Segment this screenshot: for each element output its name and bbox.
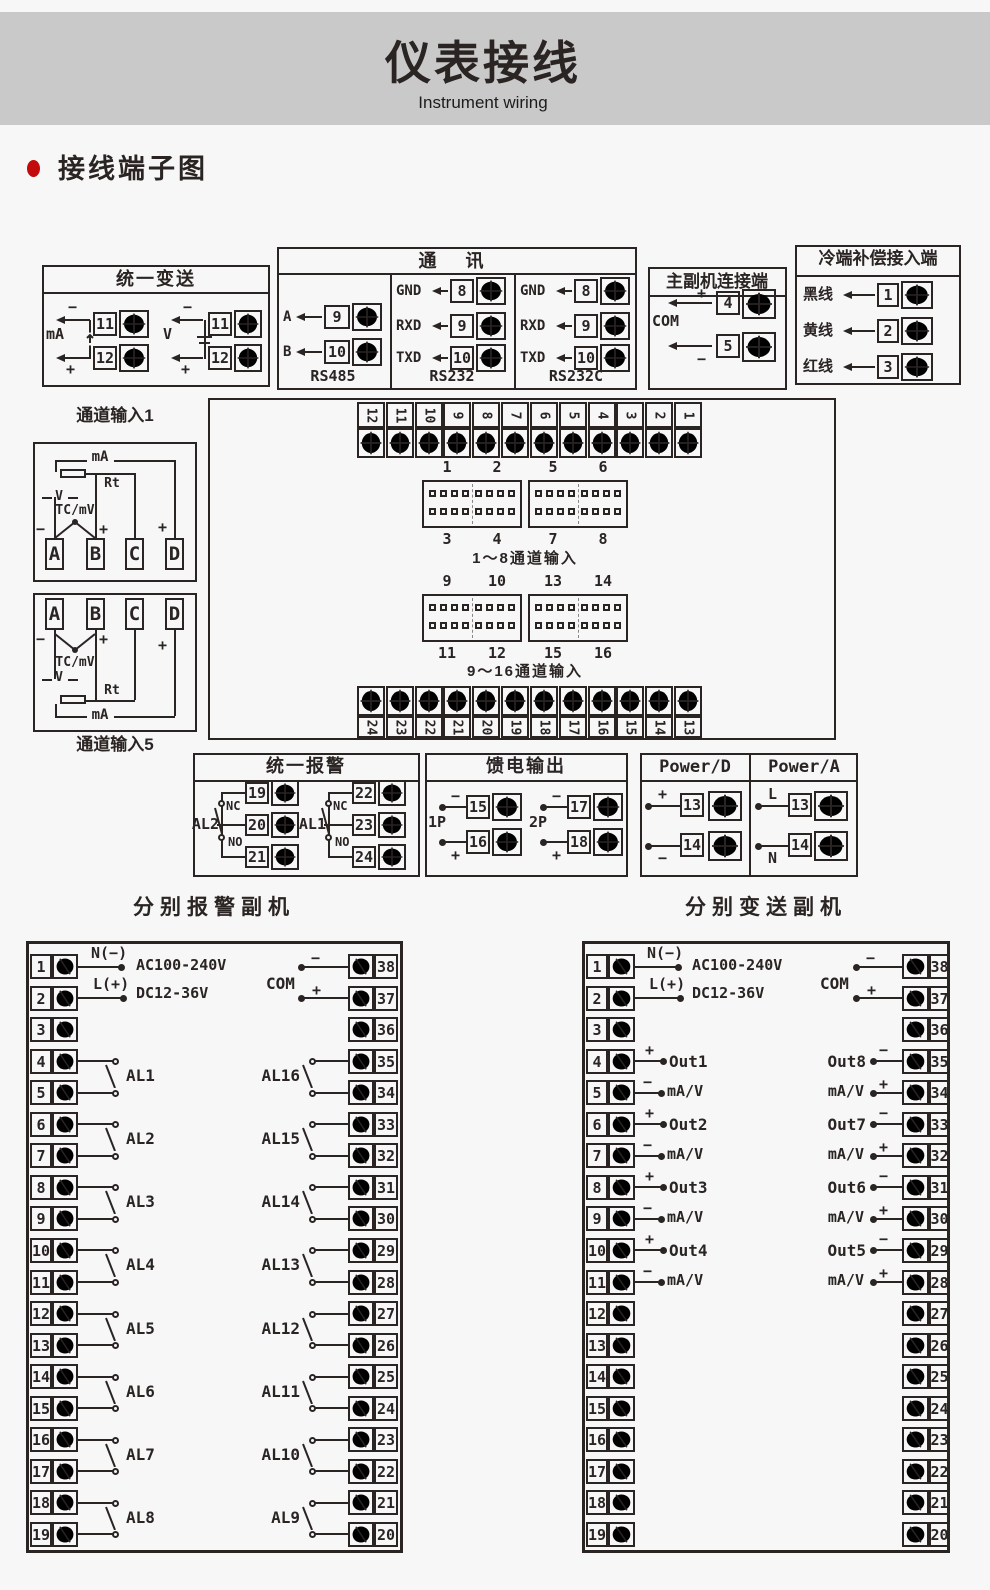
switch-blade-icon — [301, 1064, 313, 1089]
screw-terminal-icon — [52, 1364, 78, 1389]
screw-terminal-icon — [52, 1238, 78, 1263]
output-label: Out1 — [669, 1054, 708, 1070]
junction-dot — [870, 1153, 877, 1160]
signal-label-rt: Rt — [104, 477, 120, 490]
screw-terminal-icon — [472, 428, 500, 458]
screw-terminal-icon — [352, 303, 382, 331]
connector-pin-icon — [546, 508, 553, 515]
wire — [315, 1218, 348, 1220]
screw-terminal-icon — [52, 954, 78, 979]
terminal-number: 13 — [788, 793, 812, 817]
contact-circle-icon — [325, 834, 332, 841]
screw-terminal-icon — [234, 344, 262, 372]
screw-terminal-icon — [348, 1270, 374, 1295]
contact-circle-icon — [112, 1090, 119, 1097]
polarity-minus: − — [643, 1264, 652, 1279]
terminal-number: 17 — [567, 795, 591, 819]
screw-terminal-icon — [902, 1490, 929, 1515]
terminal-number: 38 — [374, 954, 398, 979]
screw-terminal-icon — [52, 1206, 78, 1231]
screw-terminal-icon — [608, 1333, 635, 1358]
contact-circle-icon — [309, 1153, 316, 1160]
wire — [634, 1186, 662, 1188]
connector-channel-label: 7 — [548, 532, 557, 547]
screw-terminal-icon — [348, 1396, 374, 1421]
screw-terminal-icon — [902, 986, 929, 1011]
connector-pin-icon — [603, 490, 610, 497]
contact-circle-icon — [309, 1090, 316, 1097]
polarity-minus: − — [643, 1201, 652, 1216]
terminal-number: 16 — [586, 1427, 608, 1452]
screw-terminal-icon — [902, 1112, 929, 1137]
page: 仪表接线 Instrument wiring 接线端子图 统一变送mA−+111… — [0, 0, 990, 1590]
terminal-number: 11 — [208, 312, 232, 336]
wire — [77, 997, 123, 999]
connector-pin-icon — [568, 622, 575, 629]
screw-terminal-icon — [501, 428, 529, 458]
screw-terminal-icon — [415, 428, 443, 458]
connector-pin-icon — [581, 508, 588, 515]
contact-circle-icon — [112, 1405, 119, 1412]
polarity-plus: + — [879, 1203, 888, 1218]
screw-terminal-icon — [52, 1017, 78, 1042]
polarity-plus: + — [697, 286, 706, 301]
connector-pin-icon — [497, 604, 504, 611]
screw-terminal-icon — [348, 1427, 374, 1452]
screw-terminal-icon — [608, 1427, 635, 1452]
wire — [856, 966, 902, 968]
connector-pin-icon — [440, 508, 447, 515]
screw-terminal-icon — [501, 686, 529, 716]
polarity-plus: + — [158, 638, 167, 653]
connector-channel-label: 2 — [492, 460, 501, 475]
arrow-shaft — [63, 357, 90, 359]
terminal-number: 4 — [30, 1049, 52, 1074]
terminal-number: 33 — [374, 1112, 398, 1137]
connector-pin-icon — [557, 490, 564, 497]
terminal-number: 30 — [929, 1206, 950, 1231]
connector-pin-icon — [508, 490, 515, 497]
screw-terminal-icon — [348, 1238, 374, 1263]
screw-terminal-icon — [674, 686, 702, 716]
screw-terminal-icon — [901, 281, 933, 309]
terminal-number: 14 — [586, 1364, 608, 1389]
switch-blade-icon — [104, 1064, 116, 1089]
output-unit-label: mA/V — [667, 1273, 703, 1288]
terminal-number: 12 — [357, 402, 385, 428]
alarm-relay-label: AL8 — [126, 1510, 155, 1526]
screw-terminal-icon — [814, 831, 848, 861]
junction-dot — [870, 1058, 877, 1065]
polarity-plus: + — [879, 1266, 888, 1281]
junction-dot — [870, 1279, 877, 1286]
terminal-number: 22 — [415, 716, 443, 738]
input-terminal: A — [45, 598, 64, 630]
polarity-minus: − — [36, 632, 45, 647]
column-divider — [514, 273, 516, 388]
terminal-number: 9 — [324, 305, 350, 329]
junction-dot — [660, 1184, 667, 1191]
connector-pin-icon — [568, 490, 575, 497]
wire — [77, 1533, 113, 1535]
wire — [648, 805, 680, 807]
connector-pin-icon — [462, 622, 469, 629]
terminal-number: 31 — [929, 1175, 950, 1200]
connector-pin-icon — [486, 508, 493, 515]
screw-terminal-icon — [814, 791, 848, 821]
junction-dot — [870, 1184, 877, 1191]
terminal-number: 21 — [374, 1490, 398, 1515]
wire — [68, 679, 78, 681]
terminal-number: 11 — [586, 1270, 608, 1295]
screw-terminal-icon — [608, 1459, 635, 1484]
wire — [174, 460, 176, 538]
connector-pin-icon — [429, 622, 436, 629]
screw-terminal-icon — [386, 428, 414, 458]
terminal-number: 22 — [352, 782, 376, 804]
screw-terminal-icon — [902, 1080, 929, 1105]
wire — [77, 1313, 113, 1315]
connector-pin-icon — [592, 490, 599, 497]
wire — [95, 630, 97, 700]
screw-terminal-icon — [530, 428, 558, 458]
connector-pin-icon — [440, 622, 447, 629]
wire — [77, 1123, 113, 1125]
terminal-number: 5 — [586, 1080, 608, 1105]
power-dc-label: DC12-36V — [692, 986, 764, 1001]
wire — [86, 700, 135, 702]
terminal-number: 26 — [929, 1333, 950, 1358]
unified-transmit-title: 统一变送 — [116, 270, 196, 288]
screw-terminal-icon — [472, 686, 500, 716]
wire — [55, 460, 57, 472]
output-unit-label: mA/V — [667, 1084, 703, 1099]
switch-blade-icon — [301, 1380, 313, 1404]
wire — [77, 1060, 113, 1062]
polarity-plus: + — [181, 362, 190, 377]
connector-pin-icon — [581, 490, 588, 497]
connector-pin-icon — [475, 508, 482, 515]
wire — [315, 1186, 348, 1188]
output-unit-label: mA/V — [802, 1147, 864, 1162]
arrow-shaft — [563, 357, 572, 359]
screw-terminal-icon — [348, 986, 374, 1011]
wire — [174, 630, 176, 716]
screw-terminal-icon — [645, 428, 673, 458]
screw-terminal-icon — [902, 1238, 929, 1263]
arrow-shaft — [178, 357, 203, 359]
connector-channel-label: 5 — [548, 460, 557, 475]
terminal-number: 7 — [501, 402, 529, 428]
terminal-number: 2 — [30, 986, 52, 1011]
screw-terminal-icon — [415, 686, 443, 716]
wire — [634, 966, 678, 968]
cold-junction-title: 冷端补偿接入端 — [819, 250, 938, 267]
terminal-number: 18 — [530, 716, 558, 738]
screw-terminal-icon — [52, 1522, 78, 1547]
screw-terminal-icon — [348, 1175, 374, 1200]
connector-pin-icon — [557, 508, 564, 515]
screw-terminal-icon — [742, 289, 776, 319]
arrow-shaft — [563, 290, 572, 292]
screw-terminal-icon — [616, 686, 644, 716]
screw-terminal-icon — [588, 428, 616, 458]
relay-nc-label: NC — [333, 800, 347, 812]
terminal-number: 5 — [716, 334, 740, 358]
screw-terminal-icon — [52, 1301, 78, 1326]
wire — [221, 792, 245, 794]
screw-terminal-icon — [378, 780, 406, 806]
terminal-number: 32 — [929, 1143, 950, 1168]
wire — [875, 1186, 902, 1188]
connector-pin-icon — [592, 622, 599, 629]
screw-terminal-icon — [608, 1270, 635, 1295]
terminal-number: 9 — [586, 1206, 608, 1231]
connector-pin-icon — [497, 508, 504, 515]
terminal-number: 20 — [245, 814, 269, 836]
terminal-number: 2 — [645, 402, 673, 428]
switch-blade-icon — [301, 1253, 313, 1278]
screw-terminal-icon — [348, 1206, 374, 1231]
connector-pin-icon — [568, 604, 575, 611]
contact-circle-icon — [309, 1468, 316, 1475]
switch-blade-icon — [104, 1506, 116, 1530]
screw-terminal-icon — [52, 1080, 78, 1105]
screw-terminal-icon — [52, 1175, 78, 1200]
wire — [634, 1281, 660, 1283]
connector-channel-label: 14 — [594, 574, 612, 589]
comm-pin-label: A — [283, 310, 291, 324]
output-label: Out2 — [669, 1117, 708, 1133]
connector-pin-icon — [429, 490, 436, 497]
wire — [315, 1439, 348, 1441]
terminal-number: 23 — [352, 814, 376, 836]
screw-terminal-icon — [476, 277, 506, 305]
screw-terminal-icon — [645, 686, 673, 716]
connector-pin-icon — [592, 508, 599, 515]
connector-pin-icon — [451, 490, 458, 497]
screw-terminal-icon — [902, 1364, 929, 1389]
terminal-number: 6 — [30, 1112, 52, 1137]
terminal-number: 24 — [352, 846, 376, 868]
alarm-relay-label: AL3 — [126, 1194, 155, 1210]
screw-terminal-icon — [600, 277, 630, 305]
signal-label-v: V — [163, 327, 172, 342]
screw-terminal-icon — [52, 1112, 78, 1137]
screw-terminal-icon — [708, 831, 742, 861]
connector-pin-icon — [614, 490, 621, 497]
connector-pin-icon — [546, 490, 553, 497]
signal-label-v: V — [55, 490, 63, 503]
wire-color-label: 黄线 — [803, 323, 833, 338]
terminal-number: 3 — [616, 402, 644, 428]
terminal-number: 28 — [374, 1270, 398, 1295]
channel-input-5-label: 通道输入5 — [76, 736, 153, 753]
com-label: COM — [266, 976, 295, 992]
title-divider — [425, 780, 628, 782]
terminal-number: 1 — [674, 402, 702, 428]
terminal-number: 25 — [374, 1364, 398, 1389]
switch-blade-icon — [104, 1127, 116, 1152]
screw-terminal-icon — [271, 780, 299, 806]
arrow-shaft — [439, 357, 448, 359]
screw-terminal-icon — [608, 954, 635, 979]
terminal-number: 4 — [716, 291, 740, 315]
relay-nc-label: NC — [226, 800, 240, 812]
screw-terminal-icon — [348, 954, 374, 979]
terminal-number: 3 — [877, 355, 899, 379]
relay-name-label: AL1 — [298, 817, 326, 832]
switch-blade-icon — [301, 1127, 313, 1152]
polarity-plus: + — [645, 1106, 654, 1121]
wire — [315, 1281, 348, 1283]
contact-circle-icon — [112, 1468, 119, 1475]
contact-circle-icon — [112, 1279, 119, 1286]
screw-terminal-icon — [348, 1333, 374, 1358]
wire — [134, 630, 136, 700]
com-label: COM — [820, 976, 849, 992]
wire — [55, 460, 87, 462]
connector-pin-icon — [429, 508, 436, 515]
wire — [758, 845, 788, 847]
polarity-minus: − — [697, 352, 706, 367]
output-unit-label: mA/V — [802, 1273, 864, 1288]
screw-terminal-icon — [348, 1490, 374, 1515]
polarity-minus: − — [643, 1138, 652, 1153]
output-label: Out7 — [804, 1117, 866, 1133]
terminal-number: 22 — [374, 1459, 398, 1484]
wire — [543, 806, 567, 808]
wire — [77, 1376, 113, 1378]
terminal-number: 15 — [466, 795, 490, 819]
wire — [77, 1218, 113, 1220]
alarm-relay-label: AL5 — [126, 1321, 155, 1337]
connector-pin-icon — [475, 604, 482, 611]
terminal-number: 15 — [30, 1396, 52, 1421]
terminal-number: 29 — [374, 1238, 398, 1263]
screw-terminal-icon — [271, 844, 299, 870]
terminal-number: 3 — [586, 1017, 608, 1042]
connector-pin-icon — [462, 490, 469, 497]
output-label: Out3 — [669, 1180, 708, 1196]
polarity-minus: − — [879, 1043, 888, 1058]
feed-output-title: 馈电输出 — [486, 757, 566, 775]
screw-terminal-icon — [530, 686, 558, 716]
screw-terminal-icon — [52, 1270, 78, 1295]
connector-pin-icon — [603, 604, 610, 611]
screw-terminal-icon — [386, 686, 414, 716]
terminal-number: 20 — [929, 1522, 950, 1547]
screw-terminal-icon — [902, 1143, 929, 1168]
screw-terminal-icon — [902, 1270, 929, 1295]
output-unit-label: mA/V — [667, 1210, 703, 1225]
connector-divider — [578, 484, 579, 524]
output-label: Out6 — [804, 1180, 866, 1196]
wire — [315, 1060, 348, 1062]
wire-color-label: 红线 — [803, 359, 833, 374]
wire — [442, 841, 466, 843]
terminal-number: 23 — [386, 716, 414, 738]
connector-pin-icon — [462, 604, 469, 611]
screw-terminal-icon — [378, 844, 406, 870]
comm-pin-label: GND — [520, 284, 545, 298]
screw-terminal-icon — [476, 312, 506, 340]
connector-channel-label: 15 — [544, 646, 562, 661]
connector-channel-label: 9 — [442, 574, 451, 589]
switch-blade-icon — [104, 1253, 116, 1278]
screw-terminal-icon — [600, 344, 630, 372]
screw-terminal-icon — [901, 353, 933, 381]
wire — [114, 460, 175, 462]
terminal-number: 17 — [586, 1459, 608, 1484]
screw-terminal-icon — [902, 1333, 929, 1358]
screw-terminal-icon — [52, 986, 78, 1011]
screw-terminal-icon — [674, 428, 702, 458]
power-sign: L — [768, 787, 777, 802]
terminal-number: 12 — [30, 1301, 52, 1326]
terminal-number: 13 — [586, 1333, 608, 1358]
screw-terminal-icon — [608, 1301, 635, 1326]
junction-dot — [660, 1058, 667, 1065]
terminal-number: 18 — [567, 830, 591, 854]
power-n-label: N(−) — [91, 946, 127, 961]
polarity-plus: + — [552, 848, 561, 863]
connector-pin-icon — [581, 622, 588, 629]
screw-terminal-icon — [608, 1080, 635, 1105]
connector-pin-icon — [557, 622, 564, 629]
junction-dot — [660, 1121, 667, 1128]
comm-pin-label: TXD — [396, 351, 421, 365]
comm-pin-label: TXD — [520, 351, 545, 365]
terminal-number: 10 — [586, 1238, 608, 1263]
polarity-plus: + — [158, 520, 167, 535]
terminal-number: 20 — [472, 716, 500, 738]
wire — [634, 997, 680, 999]
screw-terminal-icon — [352, 338, 382, 366]
screw-terminal-icon — [348, 1049, 374, 1074]
input-terminal: B — [86, 538, 105, 570]
comm-pin-label: B — [283, 345, 291, 359]
wire — [634, 1155, 660, 1157]
screw-terminal-icon — [559, 428, 587, 458]
terminal-number: 17 — [559, 716, 587, 738]
terminal-number: 10 — [324, 340, 350, 364]
wire — [315, 1123, 348, 1125]
terminal-number: 2 — [586, 986, 608, 1011]
wire — [442, 806, 466, 808]
terminal-number: 12 — [93, 346, 117, 370]
terminal-number: 16 — [466, 830, 490, 854]
alarm-relay-label: AL11 — [238, 1384, 300, 1400]
wire — [875, 1060, 902, 1062]
terminal-number: 15 — [586, 1396, 608, 1421]
contact-circle-icon — [309, 1531, 316, 1538]
wire — [634, 1249, 662, 1251]
polarity-plus: + — [645, 1232, 654, 1247]
signal-label-v: V — [55, 671, 63, 684]
communication-title: 通 讯 — [418, 252, 495, 270]
arrow-shaft — [850, 366, 875, 368]
arrow-shaft — [178, 319, 203, 321]
alarm-relay-label: AL15 — [238, 1131, 300, 1147]
terminal-number: 5 — [30, 1080, 52, 1105]
title-divider — [795, 275, 961, 277]
wire — [77, 1249, 113, 1251]
wire — [758, 805, 788, 807]
terminal-number: 21 — [929, 1490, 950, 1515]
alarm-relay-label: AL4 — [126, 1257, 155, 1273]
wire — [875, 1249, 902, 1251]
